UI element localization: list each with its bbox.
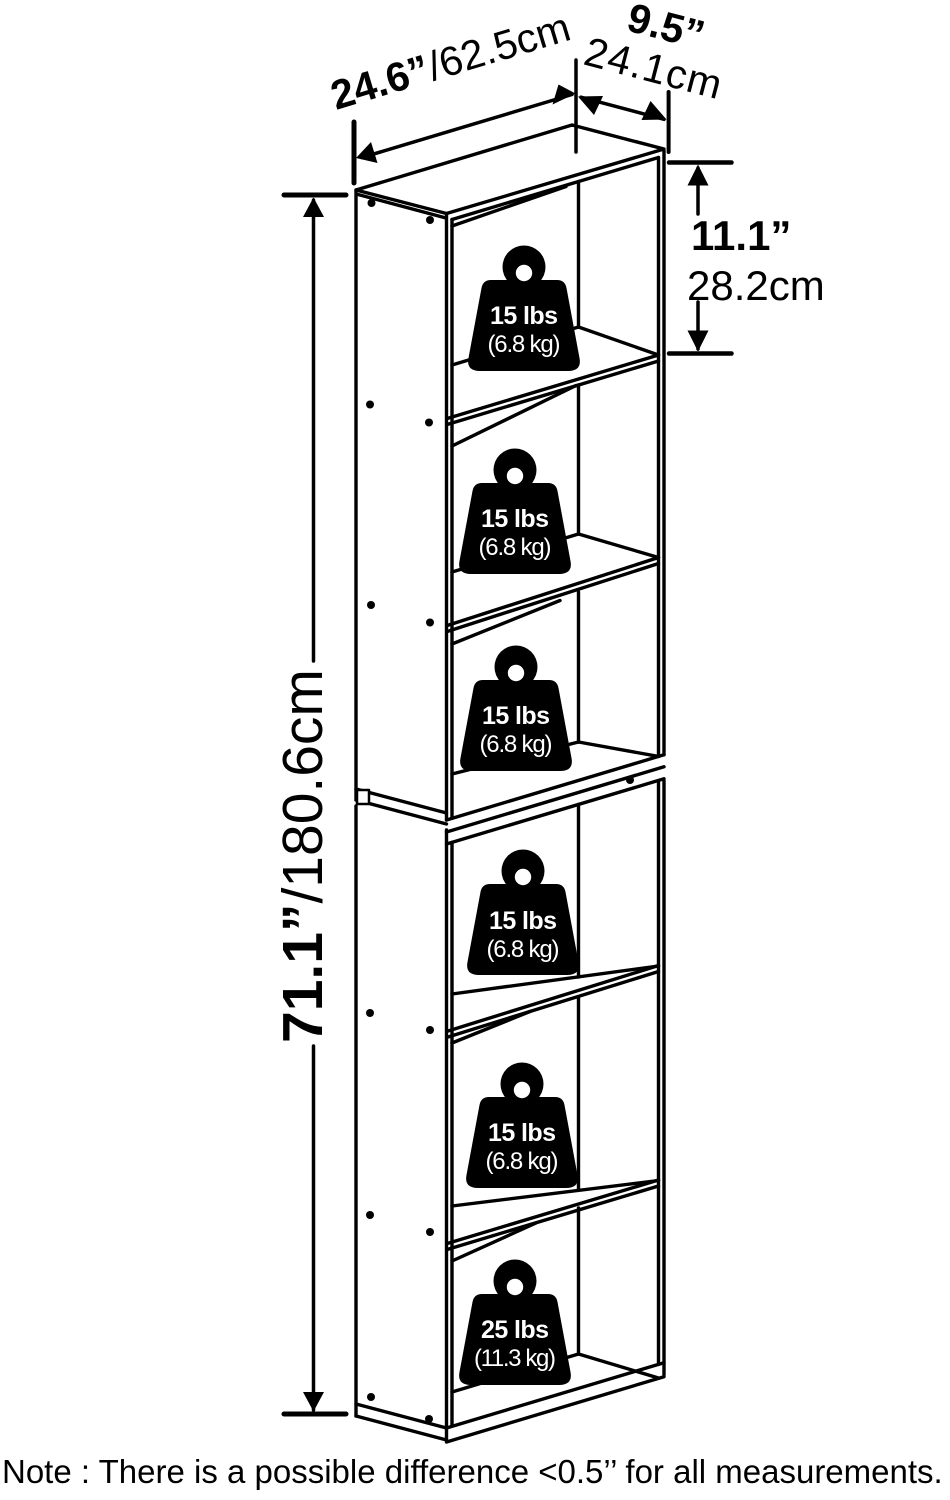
svg-text:71.1”/180.6cm: 71.1”/180.6cm [271, 669, 335, 1043]
svg-text:25 lbs: 25 lbs [481, 1316, 549, 1344]
svg-text:(11.3 kg): (11.3 kg) [474, 1345, 556, 1372]
svg-text:15 lbs: 15 lbs [489, 907, 557, 935]
svg-text:11.1”: 11.1” [691, 212, 791, 259]
svg-text:24.6”: 24.6” [325, 46, 434, 119]
svg-text:(6.8 kg): (6.8 kg) [486, 1148, 559, 1175]
svg-text:15 lbs: 15 lbs [490, 302, 558, 330]
svg-text:(6.8 kg): (6.8 kg) [488, 331, 561, 358]
svg-text:Note : There is a possible dif: Note : There is a possible difference <0… [2, 1453, 943, 1490]
svg-text:28.2cm: 28.2cm [687, 262, 825, 309]
svg-text:/62.5cm: /62.5cm [422, 4, 575, 90]
svg-text:15 lbs: 15 lbs [482, 702, 550, 730]
svg-text:(6.8 kg): (6.8 kg) [480, 731, 553, 758]
svg-text:15 lbs: 15 lbs [481, 505, 549, 533]
svg-text:(6.8 kg): (6.8 kg) [487, 936, 560, 963]
svg-text:(6.8 kg): (6.8 kg) [479, 534, 552, 561]
svg-text:15 lbs: 15 lbs [488, 1119, 556, 1147]
